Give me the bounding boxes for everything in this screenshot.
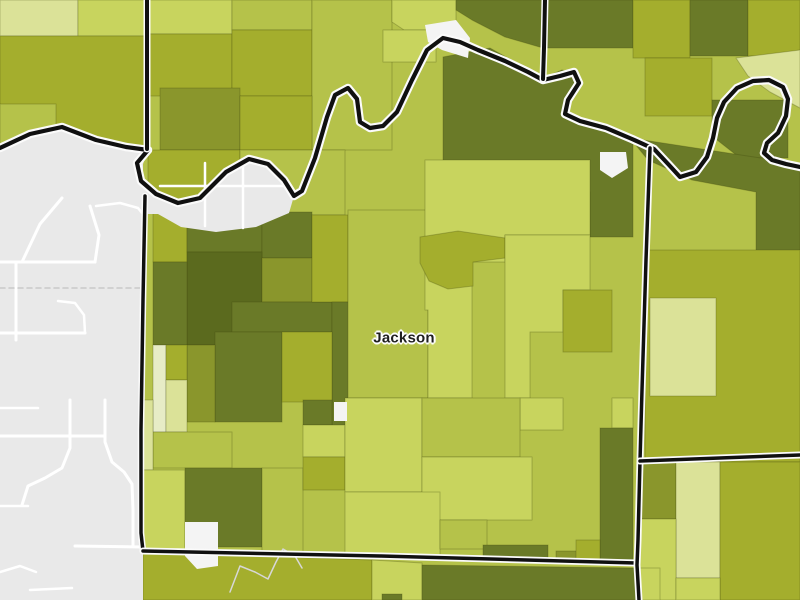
map-canvas[interactable] [0,0,800,600]
tract-region[interactable] [232,0,312,30]
water-patch [334,402,347,421]
tract-region[interactable] [187,345,215,422]
tract-region[interactable] [748,0,800,56]
tract-region[interactable] [303,400,332,425]
tract-region[interactable] [348,210,428,398]
tract-region[interactable] [282,332,332,402]
map-screenshot: Jackson [0,0,800,600]
tract-region[interactable] [422,398,520,457]
tract-region[interactable] [143,470,185,552]
tract-region[interactable] [633,0,690,58]
tract-region[interactable] [345,398,422,492]
tract-region[interactable] [153,345,166,432]
tract-region[interactable] [720,462,800,600]
tract-region[interactable] [153,262,187,345]
tract-region[interactable] [0,0,78,36]
tract-region[interactable] [232,302,332,332]
tract-region[interactable] [160,88,240,150]
tract-region[interactable] [690,0,748,56]
tract-region[interactable] [612,398,633,428]
tract-region[interactable] [153,432,232,468]
choropleth-map[interactable] [0,0,800,600]
tract-region[interactable] [78,0,148,36]
tract-region[interactable] [143,552,372,600]
tract-region[interactable] [422,565,637,600]
tract-region[interactable] [312,215,348,302]
tract-region[interactable] [600,428,633,564]
road-line [75,546,143,547]
tract-region[interactable] [520,398,563,430]
tract-region[interactable] [148,34,232,96]
tract-region[interactable] [262,258,312,302]
tract-region[interactable] [676,578,720,600]
tract-region[interactable] [148,0,232,34]
tract-region[interactable] [650,298,716,396]
north-east-vertical-line [543,0,545,79]
tract-region[interactable] [232,30,312,96]
tract-region[interactable] [215,332,282,422]
tract-region[interactable] [440,520,487,549]
tract-region[interactable] [382,594,402,600]
basemap-area [0,127,148,600]
tract-region[interactable] [563,290,612,352]
tract-region[interactable] [262,468,303,556]
tract-region[interactable] [345,492,440,557]
tract-region[interactable] [303,425,345,457]
tract-region[interactable] [303,457,345,490]
tract-region[interactable] [166,380,187,432]
tract-region[interactable] [240,96,312,150]
tract-region[interactable] [638,462,676,519]
tract-region[interactable] [166,345,187,380]
tract-region[interactable] [676,462,720,578]
tract-region[interactable] [645,58,712,116]
